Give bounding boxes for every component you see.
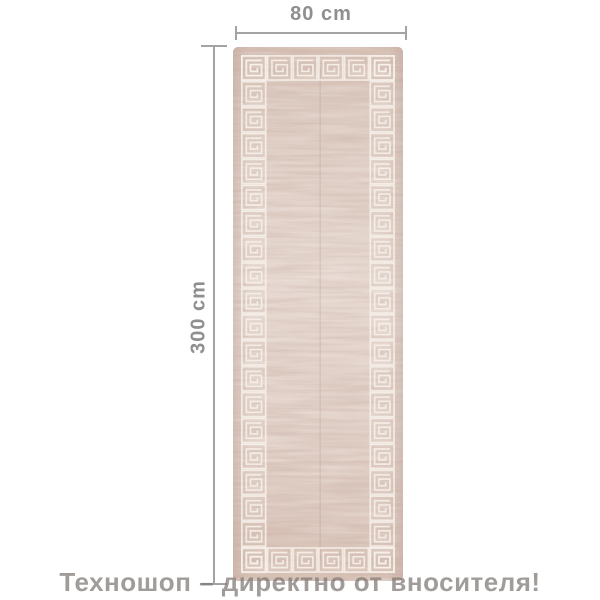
greek-key-border-left [241,55,267,573]
product-image-canvas: 80 cm 300 cm [0,0,600,600]
watermark-text: Техношоп – директно от вносителя! [0,567,600,598]
height-dimension-line [213,45,215,585]
height-dimension-label: 300 cm [188,280,211,354]
rug-illustration [233,47,403,581]
width-dimension-label: 80 cm [235,3,407,26]
rug-fold-line [319,69,321,561]
width-dimension-line [235,32,407,34]
rug-product-photo [233,47,403,581]
greek-key-border-right [369,55,395,573]
